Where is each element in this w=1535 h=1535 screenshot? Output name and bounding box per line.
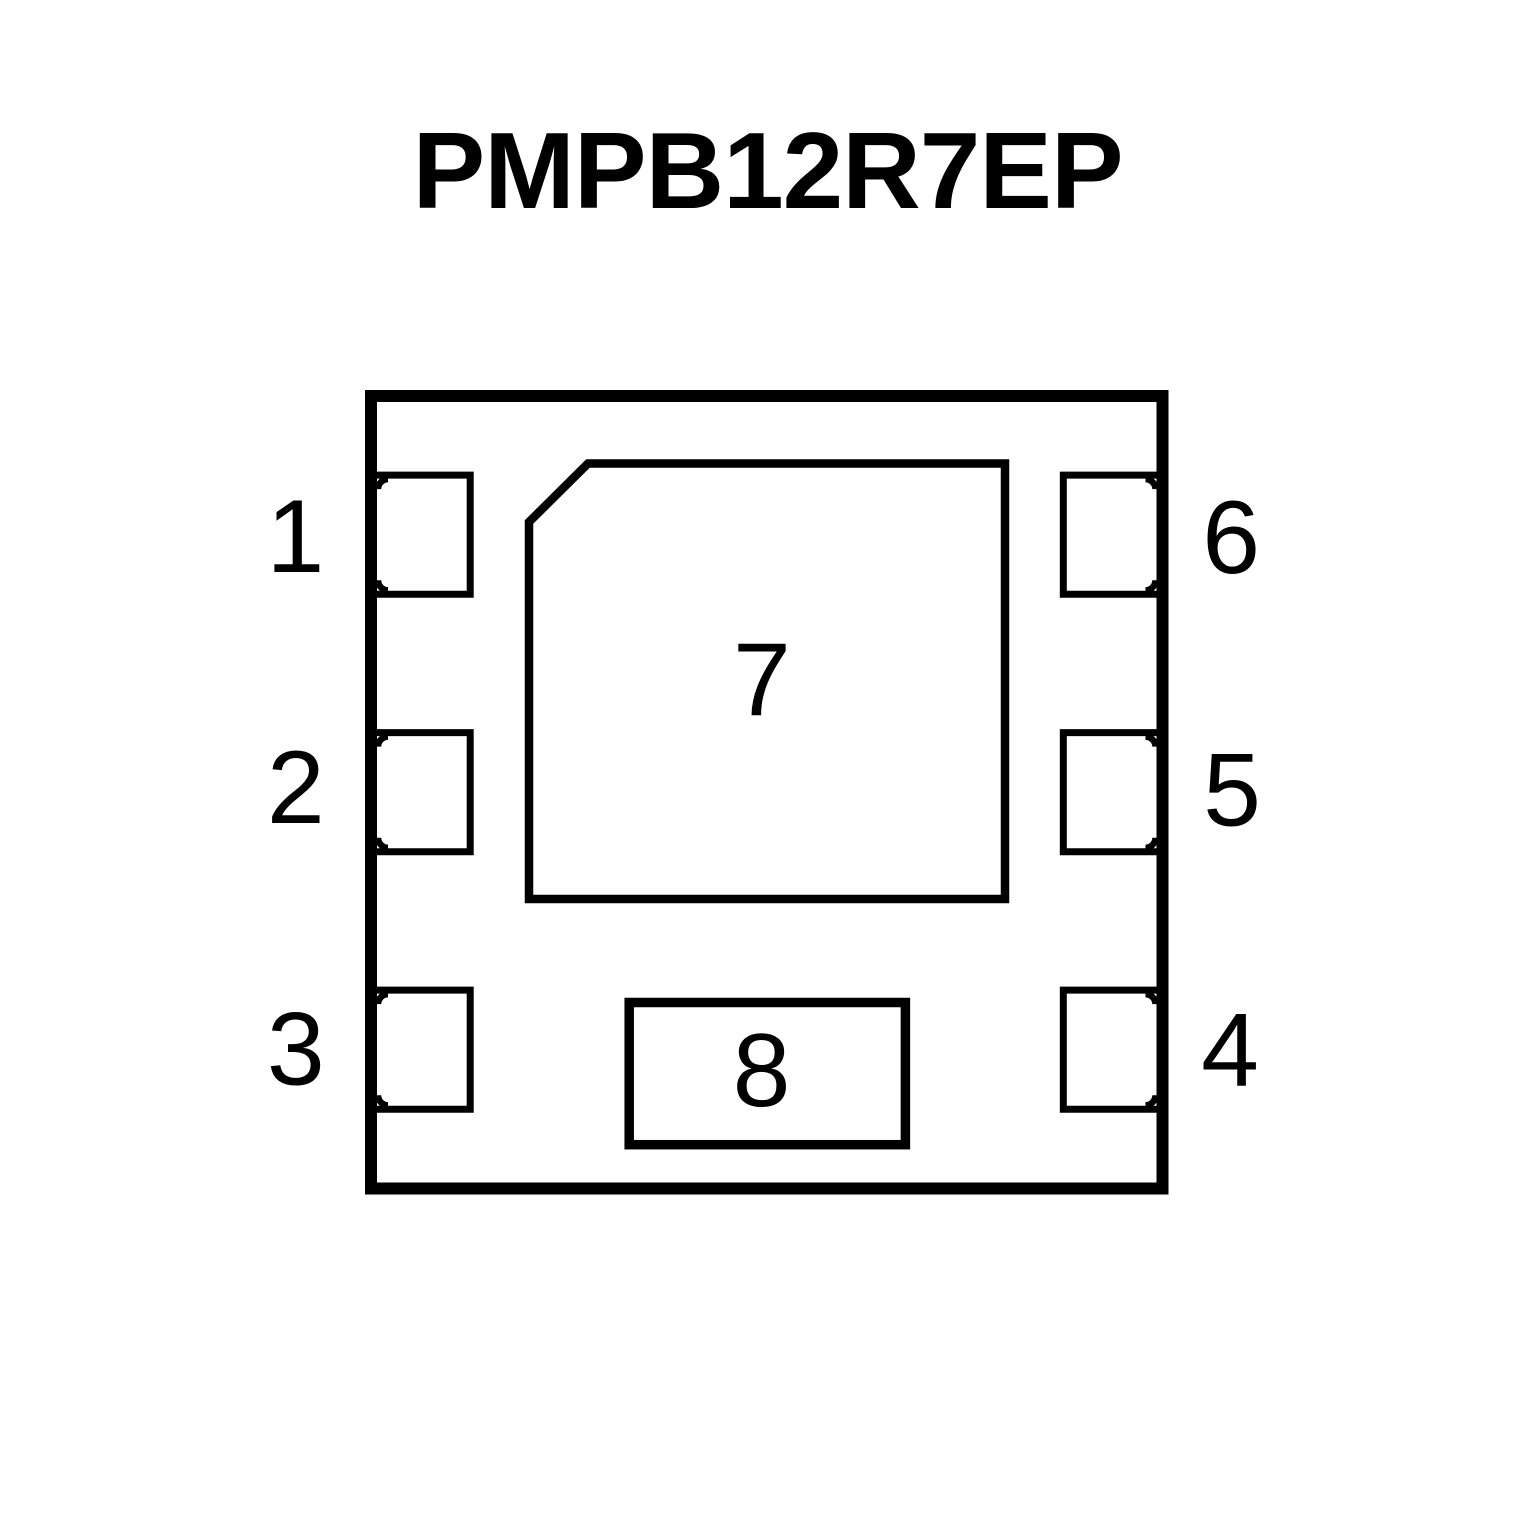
svg-text:8: 8 (733, 1013, 791, 1129)
svg-text:7: 7 (733, 623, 791, 739)
svg-text:4: 4 (1201, 993, 1259, 1109)
svg-text:6: 6 (1202, 480, 1260, 596)
svg-text:2: 2 (267, 730, 325, 846)
svg-text:5: 5 (1203, 732, 1261, 848)
svg-text:1: 1 (266, 479, 324, 595)
svg-text:PMPB12R7EP: PMPB12R7EP (413, 110, 1123, 232)
svg-text:3: 3 (267, 991, 325, 1107)
